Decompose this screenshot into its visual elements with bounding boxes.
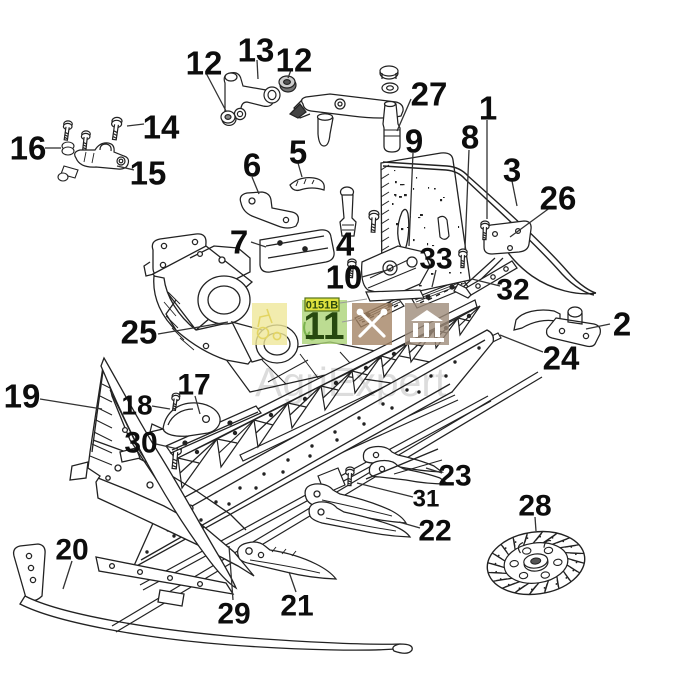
- svg-text:13: 13: [238, 32, 275, 69]
- svg-text:22: 22: [418, 515, 451, 548]
- svg-text:25: 25: [121, 314, 158, 351]
- svg-text:23: 23: [438, 460, 471, 493]
- svg-text:5: 5: [289, 134, 307, 171]
- svg-text:4: 4: [336, 226, 355, 263]
- svg-text:29: 29: [217, 598, 250, 631]
- svg-text:27: 27: [411, 76, 448, 113]
- svg-text:19: 19: [4, 378, 41, 415]
- svg-text:9: 9: [405, 123, 423, 160]
- svg-text:31: 31: [413, 486, 440, 513]
- svg-text:33: 33: [419, 243, 452, 276]
- svg-text:20: 20: [55, 534, 88, 567]
- svg-text:AgriExpert: AgriExpert: [255, 359, 447, 405]
- svg-text:24: 24: [543, 340, 580, 377]
- svg-text:7: 7: [230, 224, 248, 261]
- svg-text:26: 26: [540, 180, 577, 217]
- svg-text:16: 16: [10, 130, 47, 167]
- svg-text:12: 12: [186, 45, 223, 82]
- svg-text:6: 6: [243, 147, 261, 184]
- svg-text:15: 15: [130, 155, 167, 192]
- svg-text:2: 2: [613, 306, 631, 343]
- svg-text:18: 18: [121, 390, 152, 421]
- svg-text:12: 12: [276, 42, 313, 79]
- svg-text:14: 14: [143, 109, 180, 146]
- svg-text:8: 8: [461, 119, 479, 156]
- svg-text:30: 30: [124, 427, 157, 460]
- svg-text:17: 17: [177, 369, 210, 402]
- svg-text:21: 21: [280, 590, 313, 623]
- svg-text:28: 28: [518, 490, 551, 523]
- svg-text:1: 1: [479, 90, 497, 127]
- svg-text:3: 3: [503, 152, 521, 189]
- svg-text:10: 10: [326, 259, 363, 296]
- svg-text:11: 11: [303, 305, 344, 348]
- svg-text:32: 32: [496, 274, 529, 307]
